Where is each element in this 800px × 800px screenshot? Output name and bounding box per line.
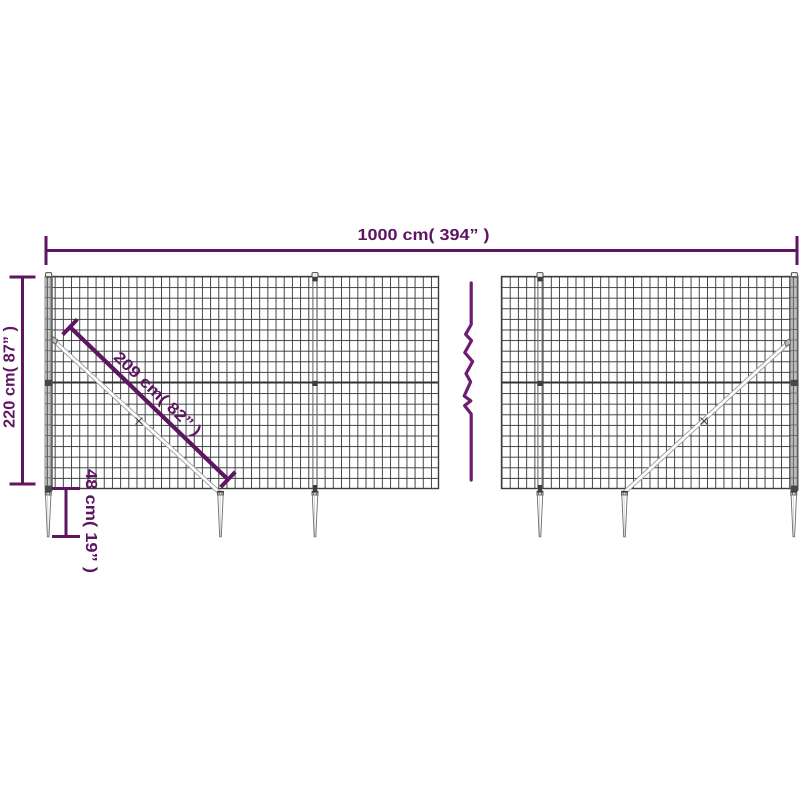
svg-text:1000 cm( 394” ): 1000 cm( 394” ) xyxy=(358,227,490,244)
svg-text:220 cm( 87” ): 220 cm( 87” ) xyxy=(2,326,19,428)
svg-text:48 cm( 19” ): 48 cm( 19” ) xyxy=(82,469,99,573)
